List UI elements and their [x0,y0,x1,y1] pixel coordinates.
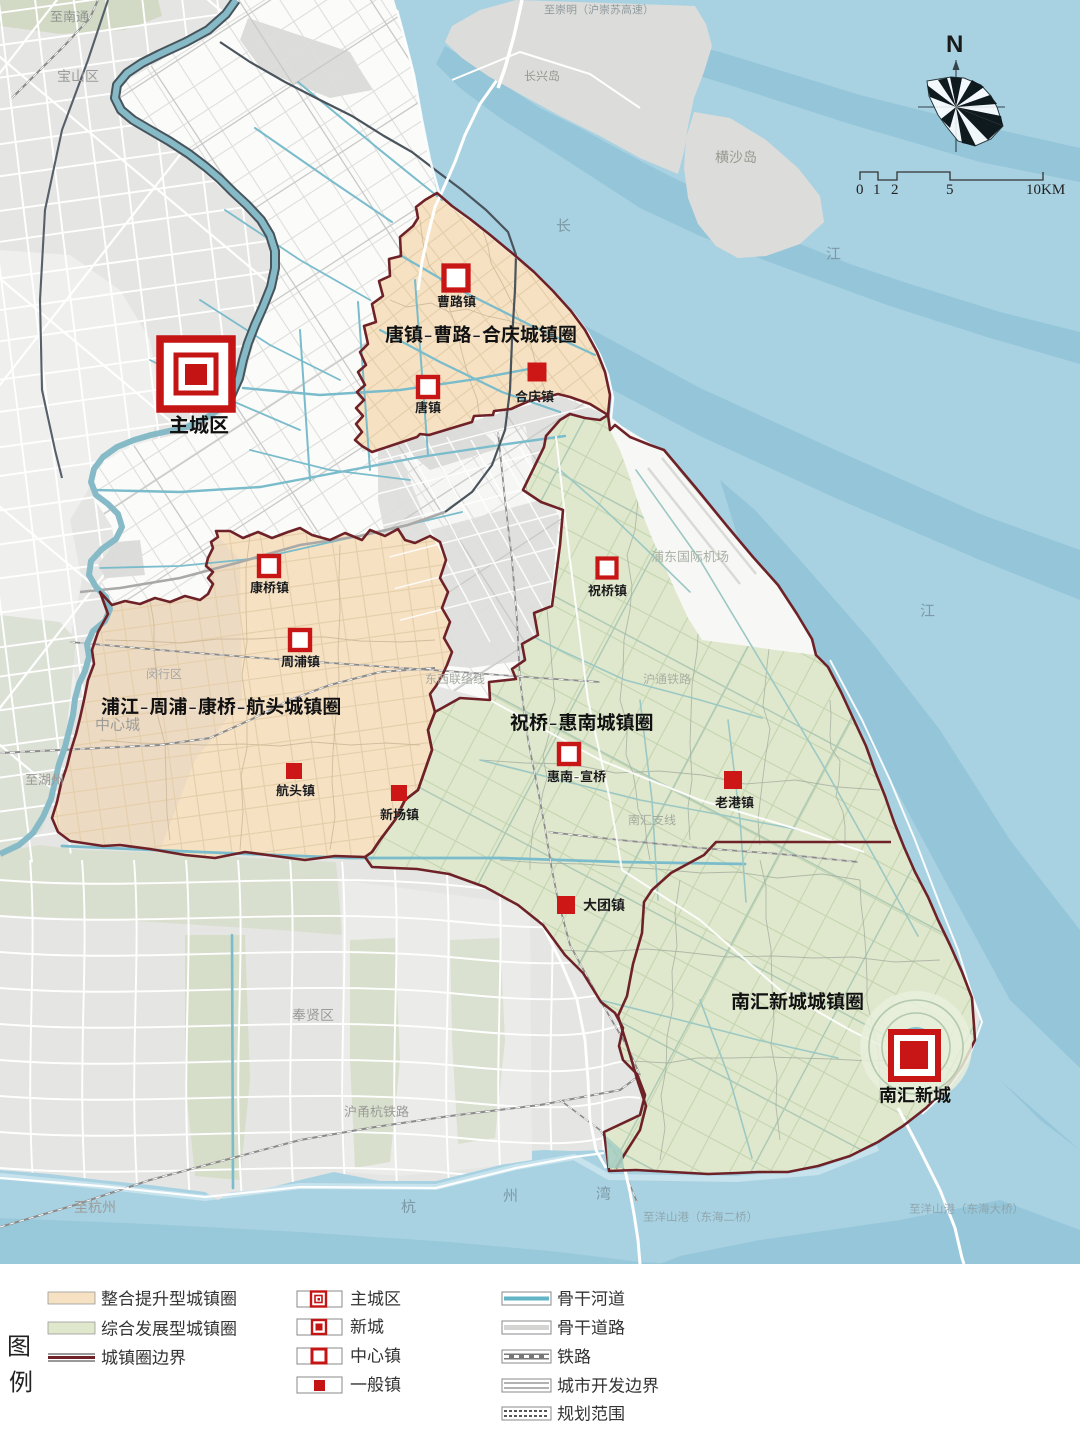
svg-text:1: 1 [873,182,881,198]
svg-text:N: N [946,31,963,58]
svg-text:5: 5 [946,182,954,198]
svg-text:0: 0 [856,182,864,198]
svg-text:10KM: 10KM [1026,182,1065,198]
svg-text:2: 2 [891,182,899,198]
